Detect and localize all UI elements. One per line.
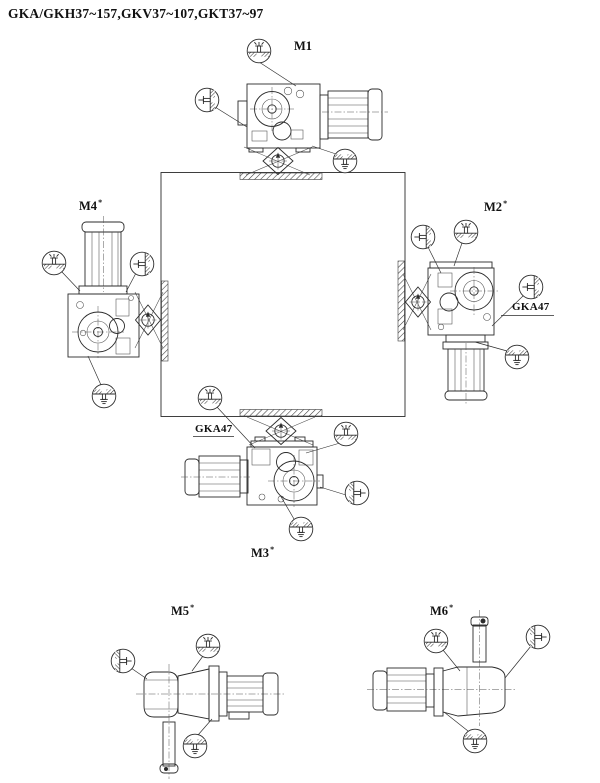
- oil-level-plug-icon: [130, 252, 154, 276]
- position-label-m2-text: M2: [484, 200, 502, 214]
- vent-plug-icon: [424, 629, 448, 653]
- oil-level-plug-icon: [111, 649, 135, 673]
- vent-plug-icon: [198, 386, 222, 410]
- position-label-m1: M1: [294, 38, 313, 54]
- vent-plug-icon: [247, 39, 271, 63]
- position-label-m3-text: M3: [251, 546, 269, 560]
- position-label-m3-footnote: *: [270, 545, 274, 554]
- position-label-m5-text: M5: [171, 604, 189, 618]
- motor-m6: [367, 668, 516, 711]
- position-label-m2: M2*: [484, 199, 507, 215]
- output-flange-marker: [406, 287, 431, 317]
- oil-level-plug-icon: [526, 625, 550, 649]
- motor-m2: [443, 335, 488, 404]
- vent-plug-icon: [42, 251, 66, 275]
- bolt-projection-lines: [403, 274, 431, 330]
- oil-level-plug-icon: [519, 275, 543, 299]
- wall-hatch-bottom: [240, 410, 322, 417]
- note-gka47-m3: GKA47: [195, 423, 233, 435]
- motor-m3: [181, 456, 250, 497]
- gearbox-m5: [136, 664, 286, 779]
- gearbox-m6: [434, 610, 505, 726]
- output-flange-marker: [266, 418, 296, 445]
- gearbox-m4: [68, 294, 139, 358]
- motor-m5: [227, 673, 278, 719]
- oil-level-plug-icon: [195, 88, 219, 112]
- mounting-surface-square: [161, 173, 405, 417]
- vent-plug-icon: [334, 422, 358, 446]
- position-label-m1-text: M1: [294, 39, 312, 53]
- oil-drain-plug-icon: [183, 734, 207, 758]
- leader-lines-m1: [215, 62, 336, 154]
- gearbox-m3: [247, 437, 323, 507]
- oil-drain-plug-icon: [333, 149, 357, 173]
- position-label-m4: M4*: [79, 198, 102, 214]
- wall-hatch-top: [240, 173, 322, 180]
- view-m5: [111, 634, 286, 779]
- output-flange-marker: [263, 148, 293, 175]
- leader-lines-m4: [62, 272, 136, 385]
- oil-drain-plug-icon: [289, 517, 313, 541]
- view-m4: [42, 216, 163, 408]
- motor-m1: [320, 89, 388, 140]
- vent-plug-icon: [454, 220, 478, 244]
- position-label-m4-footnote: *: [98, 198, 102, 207]
- oil-drain-plug-icon: [505, 345, 529, 369]
- position-label-m4-text: M4: [79, 199, 97, 213]
- view-m1: [195, 39, 388, 175]
- note-gka47-m2: GKA47: [512, 301, 550, 313]
- leader-lines-m5: [131, 656, 212, 735]
- position-label-m5: M5*: [171, 603, 194, 619]
- view-m6: [367, 610, 550, 753]
- vent-plug-icon: [196, 634, 220, 658]
- oil-drain-plug-icon: [463, 729, 487, 753]
- position-label-m3: M3*: [251, 545, 274, 561]
- position-label-m6-text: M6: [430, 604, 448, 618]
- oil-level-plug-icon: [411, 225, 435, 249]
- gearbox-m1: [238, 84, 320, 152]
- position-label-m5-footnote: *: [190, 603, 194, 612]
- mounting-position-diagram: GKA/GKH37~157,GKV37~107,GKT37~97 M1 M2* …: [0, 0, 600, 783]
- motor-m4: [79, 216, 127, 294]
- page-title: GKA/GKH37~157,GKV37~107,GKT37~97: [8, 6, 263, 22]
- gearbox-m2: [428, 262, 498, 335]
- position-label-m6-footnote: *: [449, 603, 453, 612]
- leader-lines-m6: [443, 646, 531, 731]
- oil-drain-plug-icon: [92, 384, 116, 408]
- oil-level-plug-icon: [345, 481, 369, 505]
- position-label-m6: M6*: [430, 603, 453, 619]
- position-label-m2-footnote: *: [503, 199, 507, 208]
- diagram-canvas: [0, 0, 600, 783]
